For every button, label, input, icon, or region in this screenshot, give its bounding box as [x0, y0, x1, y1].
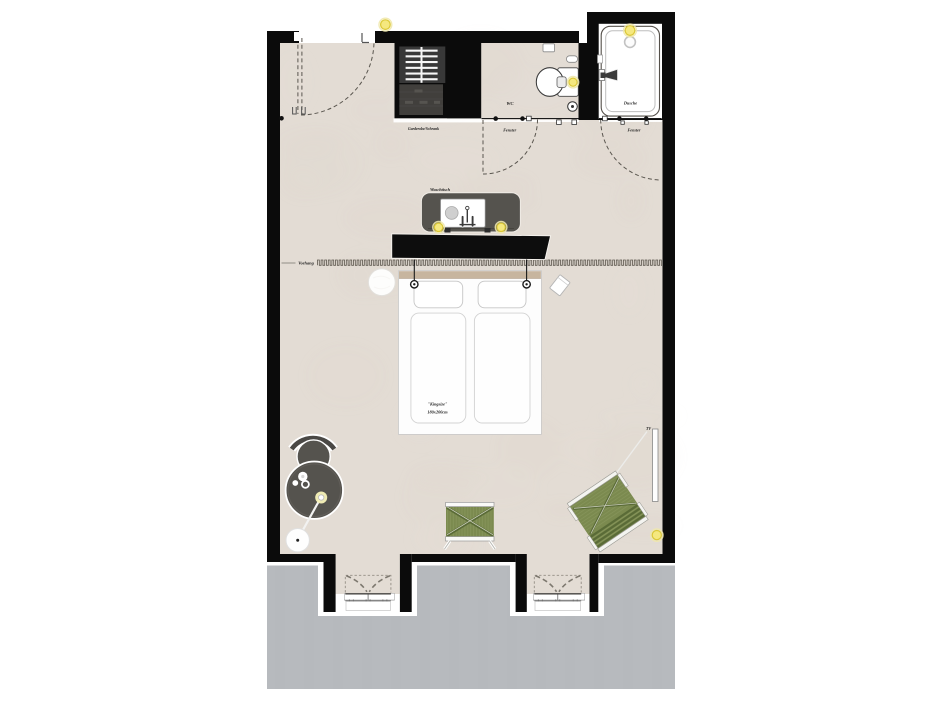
svg-text:180x200cm: 180x200cm: [427, 410, 448, 415]
svg-text:Waschtisch: Waschtisch: [430, 187, 451, 192]
svg-text:Fenster: Fenster: [628, 127, 641, 132]
svg-text:TV: TV: [646, 426, 651, 431]
svg-text:Garderobe/Schrank: Garderobe/Schrank: [408, 127, 439, 131]
svg-text:Dusche: Dusche: [623, 101, 637, 106]
svg-text:"Kingsize": "Kingsize": [428, 402, 448, 407]
svg-text:WC: WC: [506, 101, 514, 106]
svg-text:Fenster: Fenster: [503, 127, 516, 132]
svg-text:Vorhang: Vorhang: [298, 261, 314, 266]
